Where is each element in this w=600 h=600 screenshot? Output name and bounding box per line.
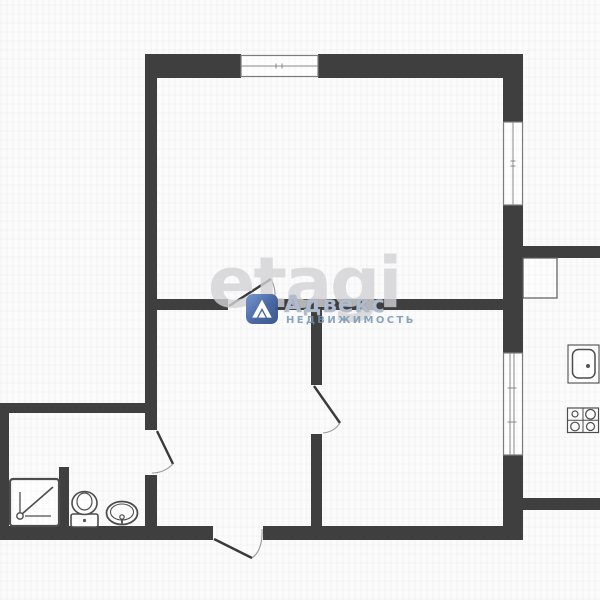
window-top: [241, 56, 318, 77]
washbasin-icon: [107, 502, 138, 525]
shower-tray-icon: [10, 479, 59, 526]
window-kitchen-wall: [504, 353, 523, 455]
wall-left-upper: [145, 54, 157, 430]
wall-divider-vertical-lower: [311, 434, 322, 526]
door-living-to-middle: [229, 279, 275, 306]
toilet-icon: [71, 492, 98, 528]
windows: [241, 56, 523, 456]
wall-top-left: [145, 54, 241, 78]
wall-divider-horizontal-left: [157, 299, 228, 310]
wall-shower-partition: [59, 467, 69, 526]
stove-4-burner-icon: [568, 408, 599, 433]
wall-kitchen-bottom: [523, 498, 600, 510]
wall-top-right: [318, 54, 523, 78]
window-right: [504, 122, 523, 205]
door-bathroom: [152, 431, 173, 473]
vent-duct-icon: [523, 258, 557, 298]
wall-bottom-right: [263, 526, 523, 540]
wall-kitchen-top: [523, 246, 600, 258]
wall-divider-horizontal-right: [275, 299, 503, 310]
floor-plan-drawing: [0, 0, 600, 600]
wall-right-upper: [503, 54, 523, 122]
wall-right-middle: [503, 205, 523, 353]
wall-bathroom-top: [0, 403, 157, 413]
door-middle-to-right: [314, 386, 340, 433]
wall-bottom-left: [0, 526, 213, 540]
wall-divider-vertical-upper: [311, 310, 322, 385]
door-entrance: [214, 529, 262, 558]
wall-bathroom-left: [0, 403, 9, 540]
kitchen-sink-icon: [568, 345, 599, 383]
